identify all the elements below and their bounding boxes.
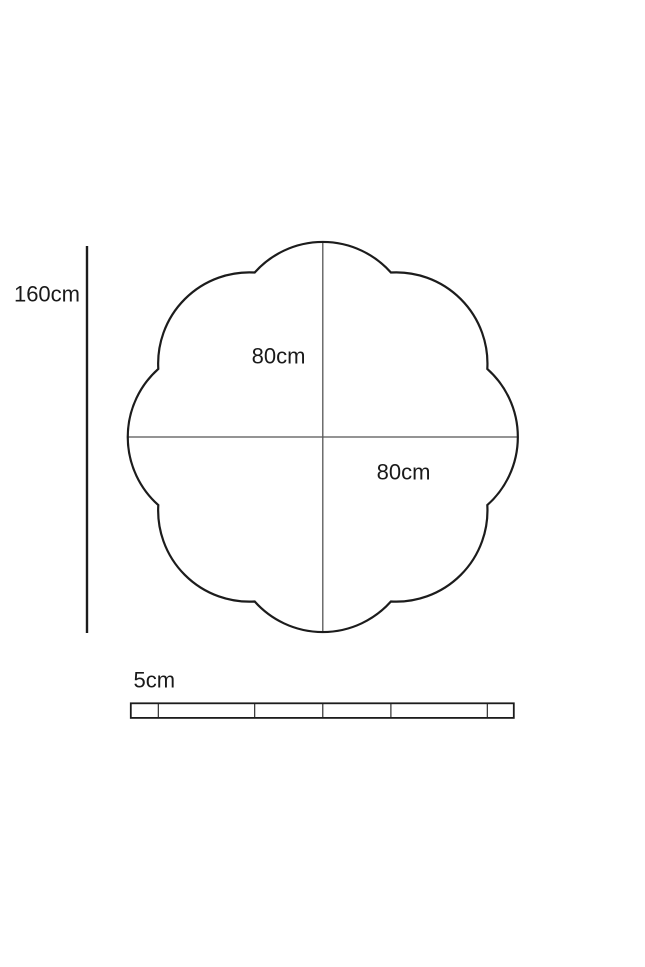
svg-text:80cm: 80cm [377, 460, 431, 485]
svg-text:160cm: 160cm [14, 282, 80, 307]
svg-text:5cm: 5cm [134, 668, 176, 693]
svg-text:80cm: 80cm [252, 344, 306, 369]
